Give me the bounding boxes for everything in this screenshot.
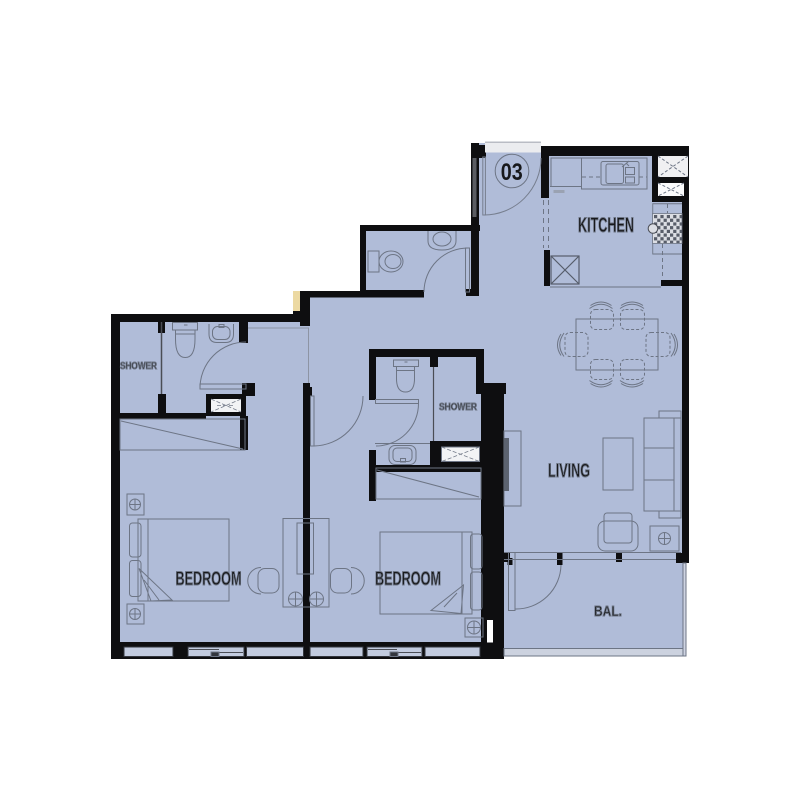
svg-text:SHOWER: SHOWER	[120, 360, 157, 372]
svg-text:BAL.: BAL.	[594, 603, 622, 620]
svg-text:KITCHEN: KITCHEN	[578, 214, 634, 237]
svg-text:BEDROOM: BEDROOM	[176, 569, 242, 590]
svg-text:SHOWER: SHOWER	[439, 401, 477, 413]
svg-text:BEDROOM: BEDROOM	[375, 569, 441, 590]
svg-text:03: 03	[501, 159, 523, 186]
svg-text:LIVING: LIVING	[548, 461, 590, 482]
